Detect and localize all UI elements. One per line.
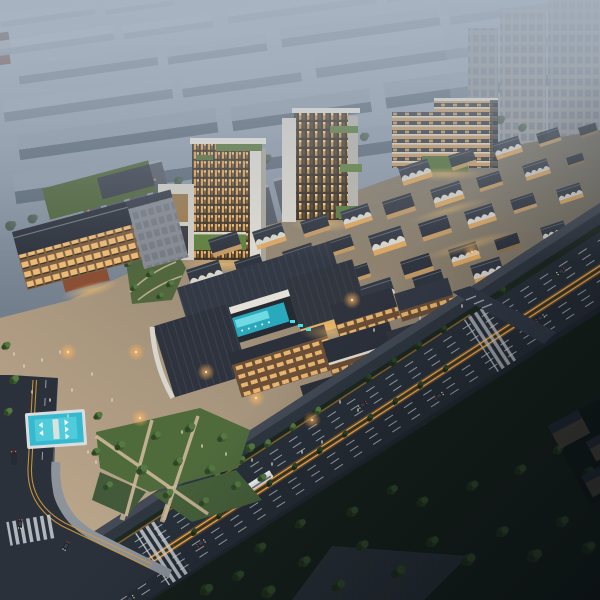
aerial-rendering-stage: Aerial dusk rendering of a mixed-use urb…	[0, 0, 600, 600]
vignette	[0, 0, 600, 600]
aerial-rendering: Aerial dusk rendering of a mixed-use urb…	[0, 0, 600, 600]
